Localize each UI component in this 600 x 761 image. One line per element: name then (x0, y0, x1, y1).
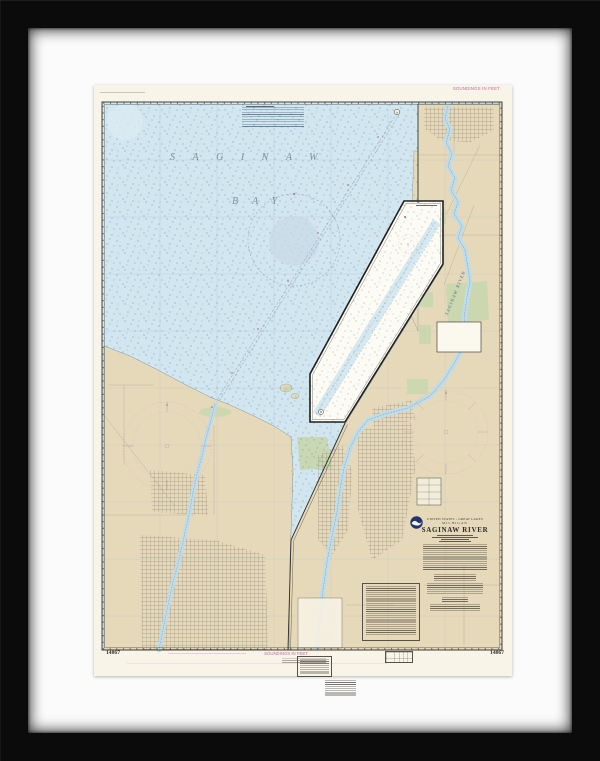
bottom-margin-script-line (168, 653, 246, 654)
chart-sheet: A (94, 85, 512, 676)
chart-title-block: UNITED STATES - GREAT LAKES MICHIGAN SAG… (410, 516, 500, 612)
title-notes-paragraph (423, 544, 487, 571)
bay-name-word1: SAGINAW (170, 153, 335, 163)
chart-marker-b: B (319, 410, 324, 415)
bay-note-block (242, 107, 304, 127)
left-panel-note (325, 680, 356, 696)
chart-number-bottom-left: 14867 (106, 651, 120, 657)
soundings-note-bottom: SOUNDINGS IN FEET (262, 652, 310, 656)
noaa-logo-icon (410, 516, 423, 529)
chart-title: SAGINAW RIVER (410, 527, 500, 534)
reproduction-note-line (127, 663, 387, 664)
bay-name-word2: BAY (232, 197, 291, 207)
title-sub-line (441, 539, 469, 540)
title-notes-small (430, 604, 480, 612)
title-state-line: MICHIGAN (410, 522, 500, 525)
list-note-box (362, 583, 420, 641)
title-notes-small (434, 574, 476, 581)
bay-note-heading-line (246, 106, 274, 107)
title-sub-line (439, 541, 471, 542)
title-notes-small (442, 597, 468, 602)
soundings-note-top: SOUNDINGS IN FEET (453, 87, 500, 91)
title-notes-small (427, 583, 483, 594)
correction-table (385, 651, 413, 663)
chart-marker-a: A (394, 109, 400, 115)
svg-text:B: B (320, 410, 322, 414)
title-sub-line (437, 535, 473, 536)
title-sub-line (432, 537, 478, 538)
edition-note-line (100, 92, 145, 93)
chart-number-bottom-right: 14867 (490, 651, 504, 657)
